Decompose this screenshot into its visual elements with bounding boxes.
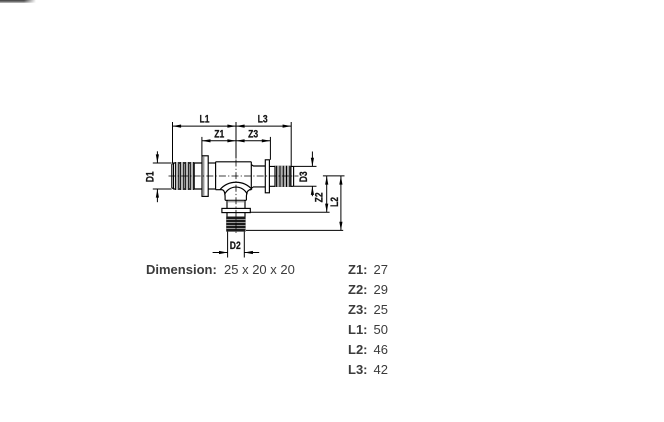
svg-text:L2: L2	[329, 197, 341, 207]
svg-text:D1: D1	[145, 171, 157, 182]
svg-text:L3: L3	[258, 114, 268, 126]
svg-text:Z3: Z3	[248, 129, 258, 141]
svg-text:Z2: Z2	[314, 192, 326, 202]
svg-text:Z1: Z1	[214, 129, 224, 141]
svg-text:L1: L1	[200, 114, 210, 126]
svg-text:D3: D3	[298, 171, 310, 182]
svg-text:D2: D2	[230, 240, 241, 252]
